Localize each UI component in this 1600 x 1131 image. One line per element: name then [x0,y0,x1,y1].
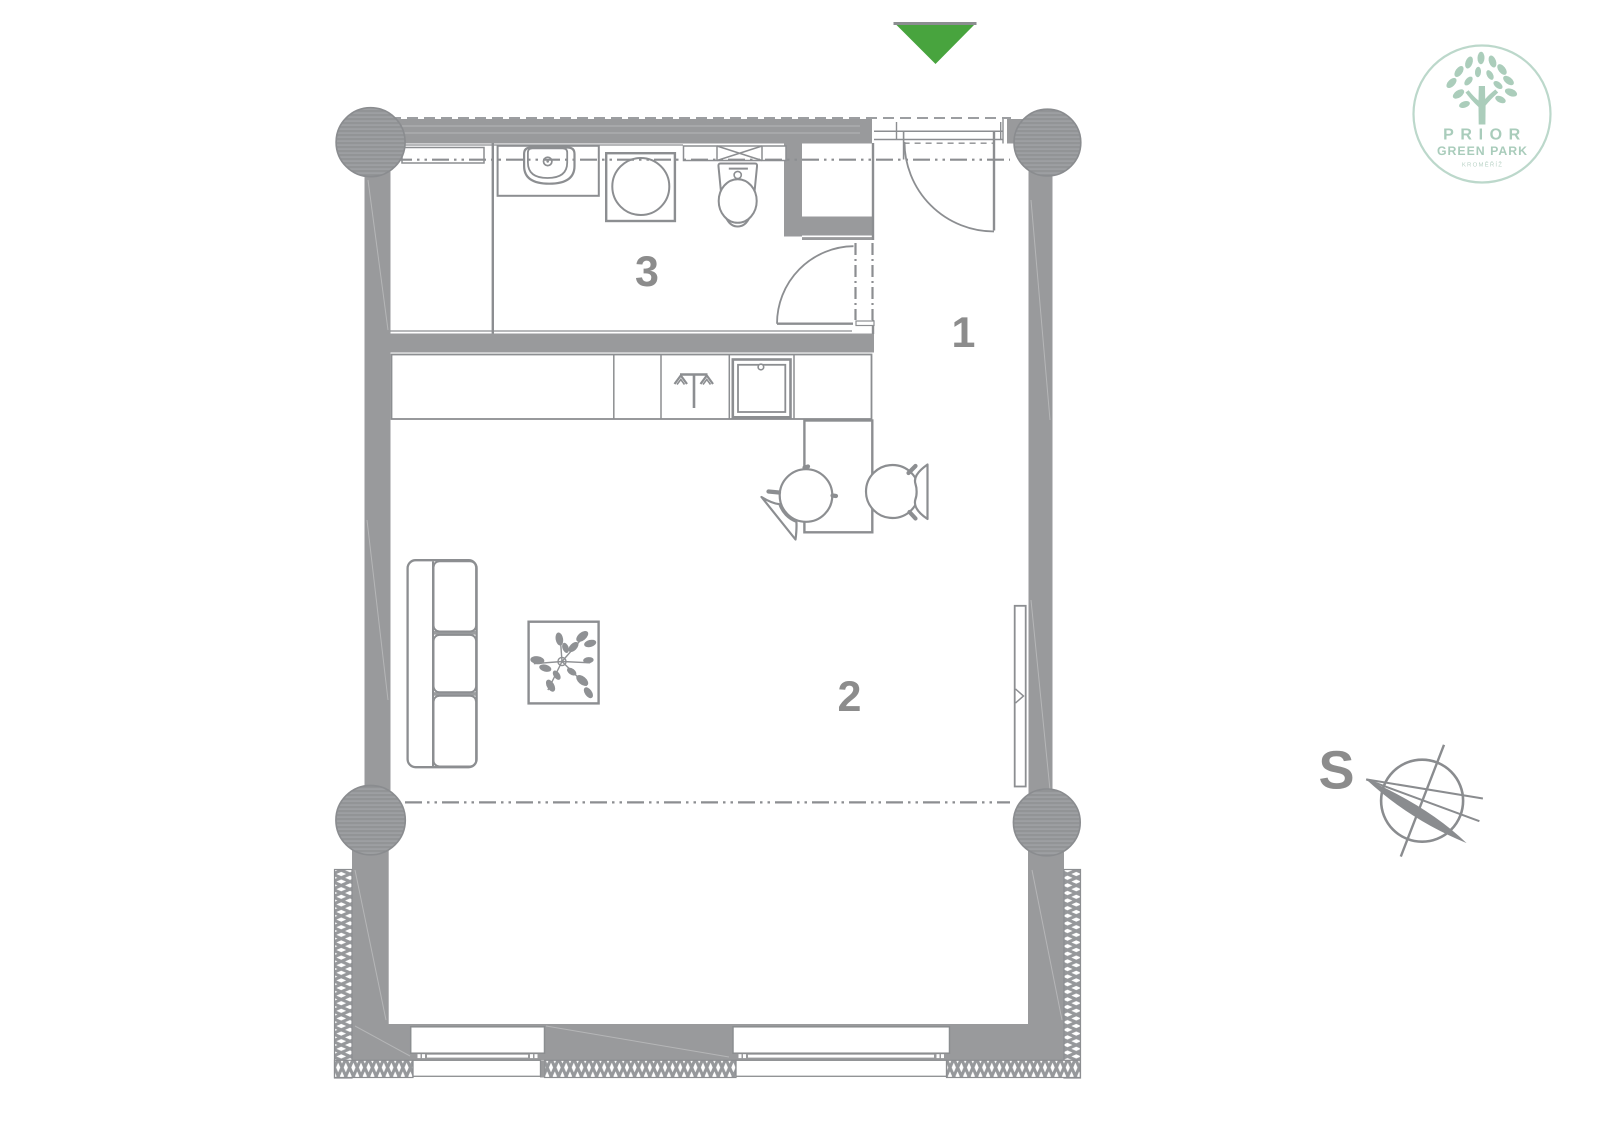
svg-text:PRIOR: PRIOR [1443,127,1527,144]
svg-text:S: S [1318,741,1354,801]
svg-text:2: 2 [838,673,862,721]
svg-text:3: 3 [635,248,659,296]
svg-text:1: 1 [952,309,976,357]
svg-text:KROMĚŘÍŽ: KROMĚŘÍŽ [1462,161,1503,169]
svg-text:GREEN PARK: GREEN PARK [1437,144,1528,158]
